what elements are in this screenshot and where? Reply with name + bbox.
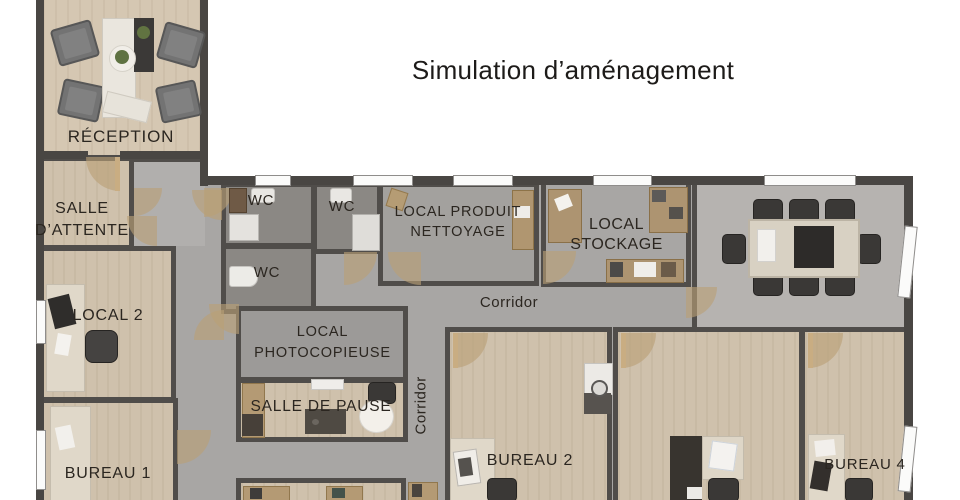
bureau3-papers	[708, 440, 738, 471]
label-bureau-1: BUREAU 1	[50, 464, 166, 484]
wc-middle-shower	[352, 214, 380, 251]
window-top-3	[453, 175, 513, 186]
bottom-room-item-dark	[250, 488, 262, 499]
label-local-2: LOCAL 2	[52, 306, 164, 326]
label-bureau-2: BUREAU 2	[474, 451, 586, 471]
stockage-bottom-box	[661, 262, 676, 277]
label-corridor-main: Corridor	[453, 294, 565, 313]
bureau1-desk	[50, 406, 91, 500]
wall-reception-bottom-b	[120, 151, 208, 159]
bureau2-unit-circle	[591, 380, 608, 397]
pause-wall-shelf	[311, 379, 344, 390]
label-corridor-vertical: Corridor	[413, 365, 432, 445]
door-reception-leaf	[115, 157, 120, 191]
bureau3-item-white	[687, 487, 702, 499]
bureau2-laptop-screen	[458, 457, 473, 477]
meeting-chair-right	[857, 234, 881, 264]
door-bureau-2-leaf	[453, 333, 458, 368]
bureau4-paper	[814, 439, 836, 457]
window-top-5	[764, 175, 856, 186]
bureau2-chair	[487, 478, 517, 500]
stockage-box-1	[652, 190, 666, 202]
label-photocopieuse: LOCAL PHOTOCOPIEUSE	[245, 322, 400, 364]
label-salle-de-pause: SALLE DE PAUSE	[250, 397, 392, 416]
pause-coffee-detail	[312, 419, 319, 425]
floorplan-canvas: Simulation d’aménagement	[0, 0, 960, 500]
reception-plant	[115, 50, 129, 64]
window-left-1	[36, 300, 46, 344]
local2-chair	[85, 330, 118, 363]
corridor-cabinet-dark	[412, 484, 422, 497]
meeting-screen	[794, 226, 834, 268]
page-title: Simulation d’aménagement	[392, 54, 754, 87]
label-wc-top: WC	[239, 192, 283, 211]
window-left-2	[36, 430, 46, 490]
stockage-bottom-white	[634, 262, 656, 277]
label-local-stockage: LOCAL STOCKAGE	[545, 215, 688, 255]
wc-top-washer	[229, 214, 259, 241]
wall-reception-bottom-a	[36, 151, 88, 159]
bottom-room-item-green	[332, 488, 345, 498]
bureau4-chair	[845, 478, 873, 500]
label-salle-attente: SALLE D’ATTENTE	[14, 198, 150, 242]
label-reception: RÉCEPTION	[55, 126, 187, 147]
door-bureau-4-leaf	[808, 333, 813, 368]
window-top-2	[353, 175, 413, 186]
label-wc-middle: WC	[320, 198, 364, 217]
stockage-bottom-dark	[610, 262, 623, 277]
label-bureau-4: BUREAU 4	[814, 456, 916, 475]
reception-counter-plant	[137, 26, 150, 39]
window-top-1	[255, 175, 291, 186]
meeting-documents	[757, 229, 776, 262]
bureau3-chair	[708, 478, 739, 500]
window-top-4	[593, 175, 652, 186]
wall-left	[36, 0, 44, 500]
label-local-produit: LOCAL PRODUIT NETTOYAGE	[380, 202, 536, 242]
label-wc-bottom: WC	[245, 264, 289, 283]
pause-cabinet-dark	[242, 414, 263, 436]
meeting-chair-left	[722, 234, 746, 264]
door-bureau-3-leaf	[621, 333, 626, 368]
